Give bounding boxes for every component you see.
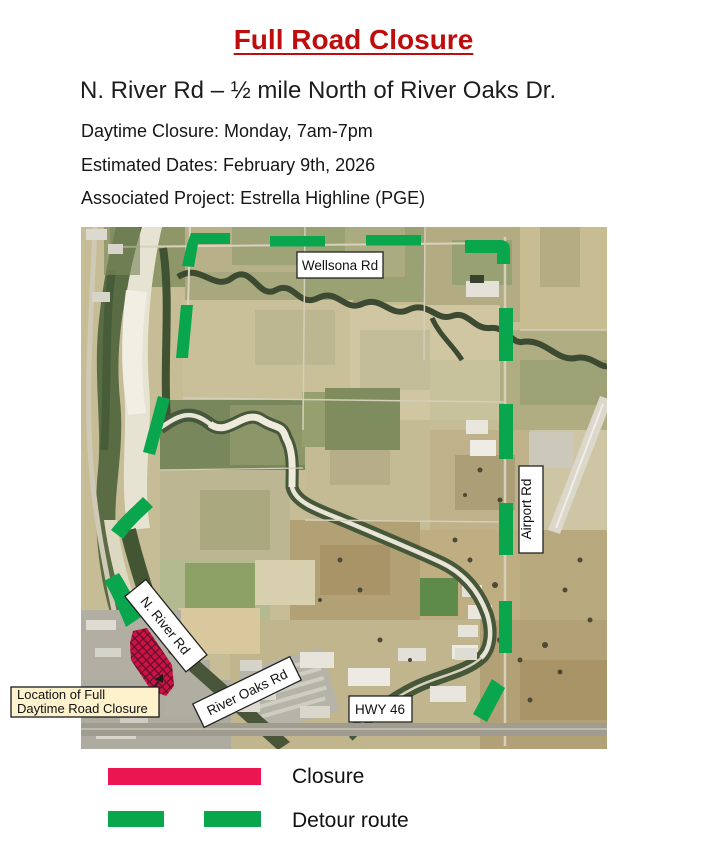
svg-text:HWY 46: HWY 46 (355, 702, 405, 717)
svg-text:Detour route: Detour route (292, 809, 409, 832)
svg-text:Daytime Road Closure: Daytime Road Closure (17, 701, 148, 716)
svg-text:Wellsona Rd: Wellsona Rd (302, 258, 378, 273)
svg-text:Closure: Closure (292, 765, 364, 788)
svg-text:Location of Full: Location of Full (17, 687, 105, 702)
svg-text:Airport Rd: Airport Rd (519, 479, 534, 540)
